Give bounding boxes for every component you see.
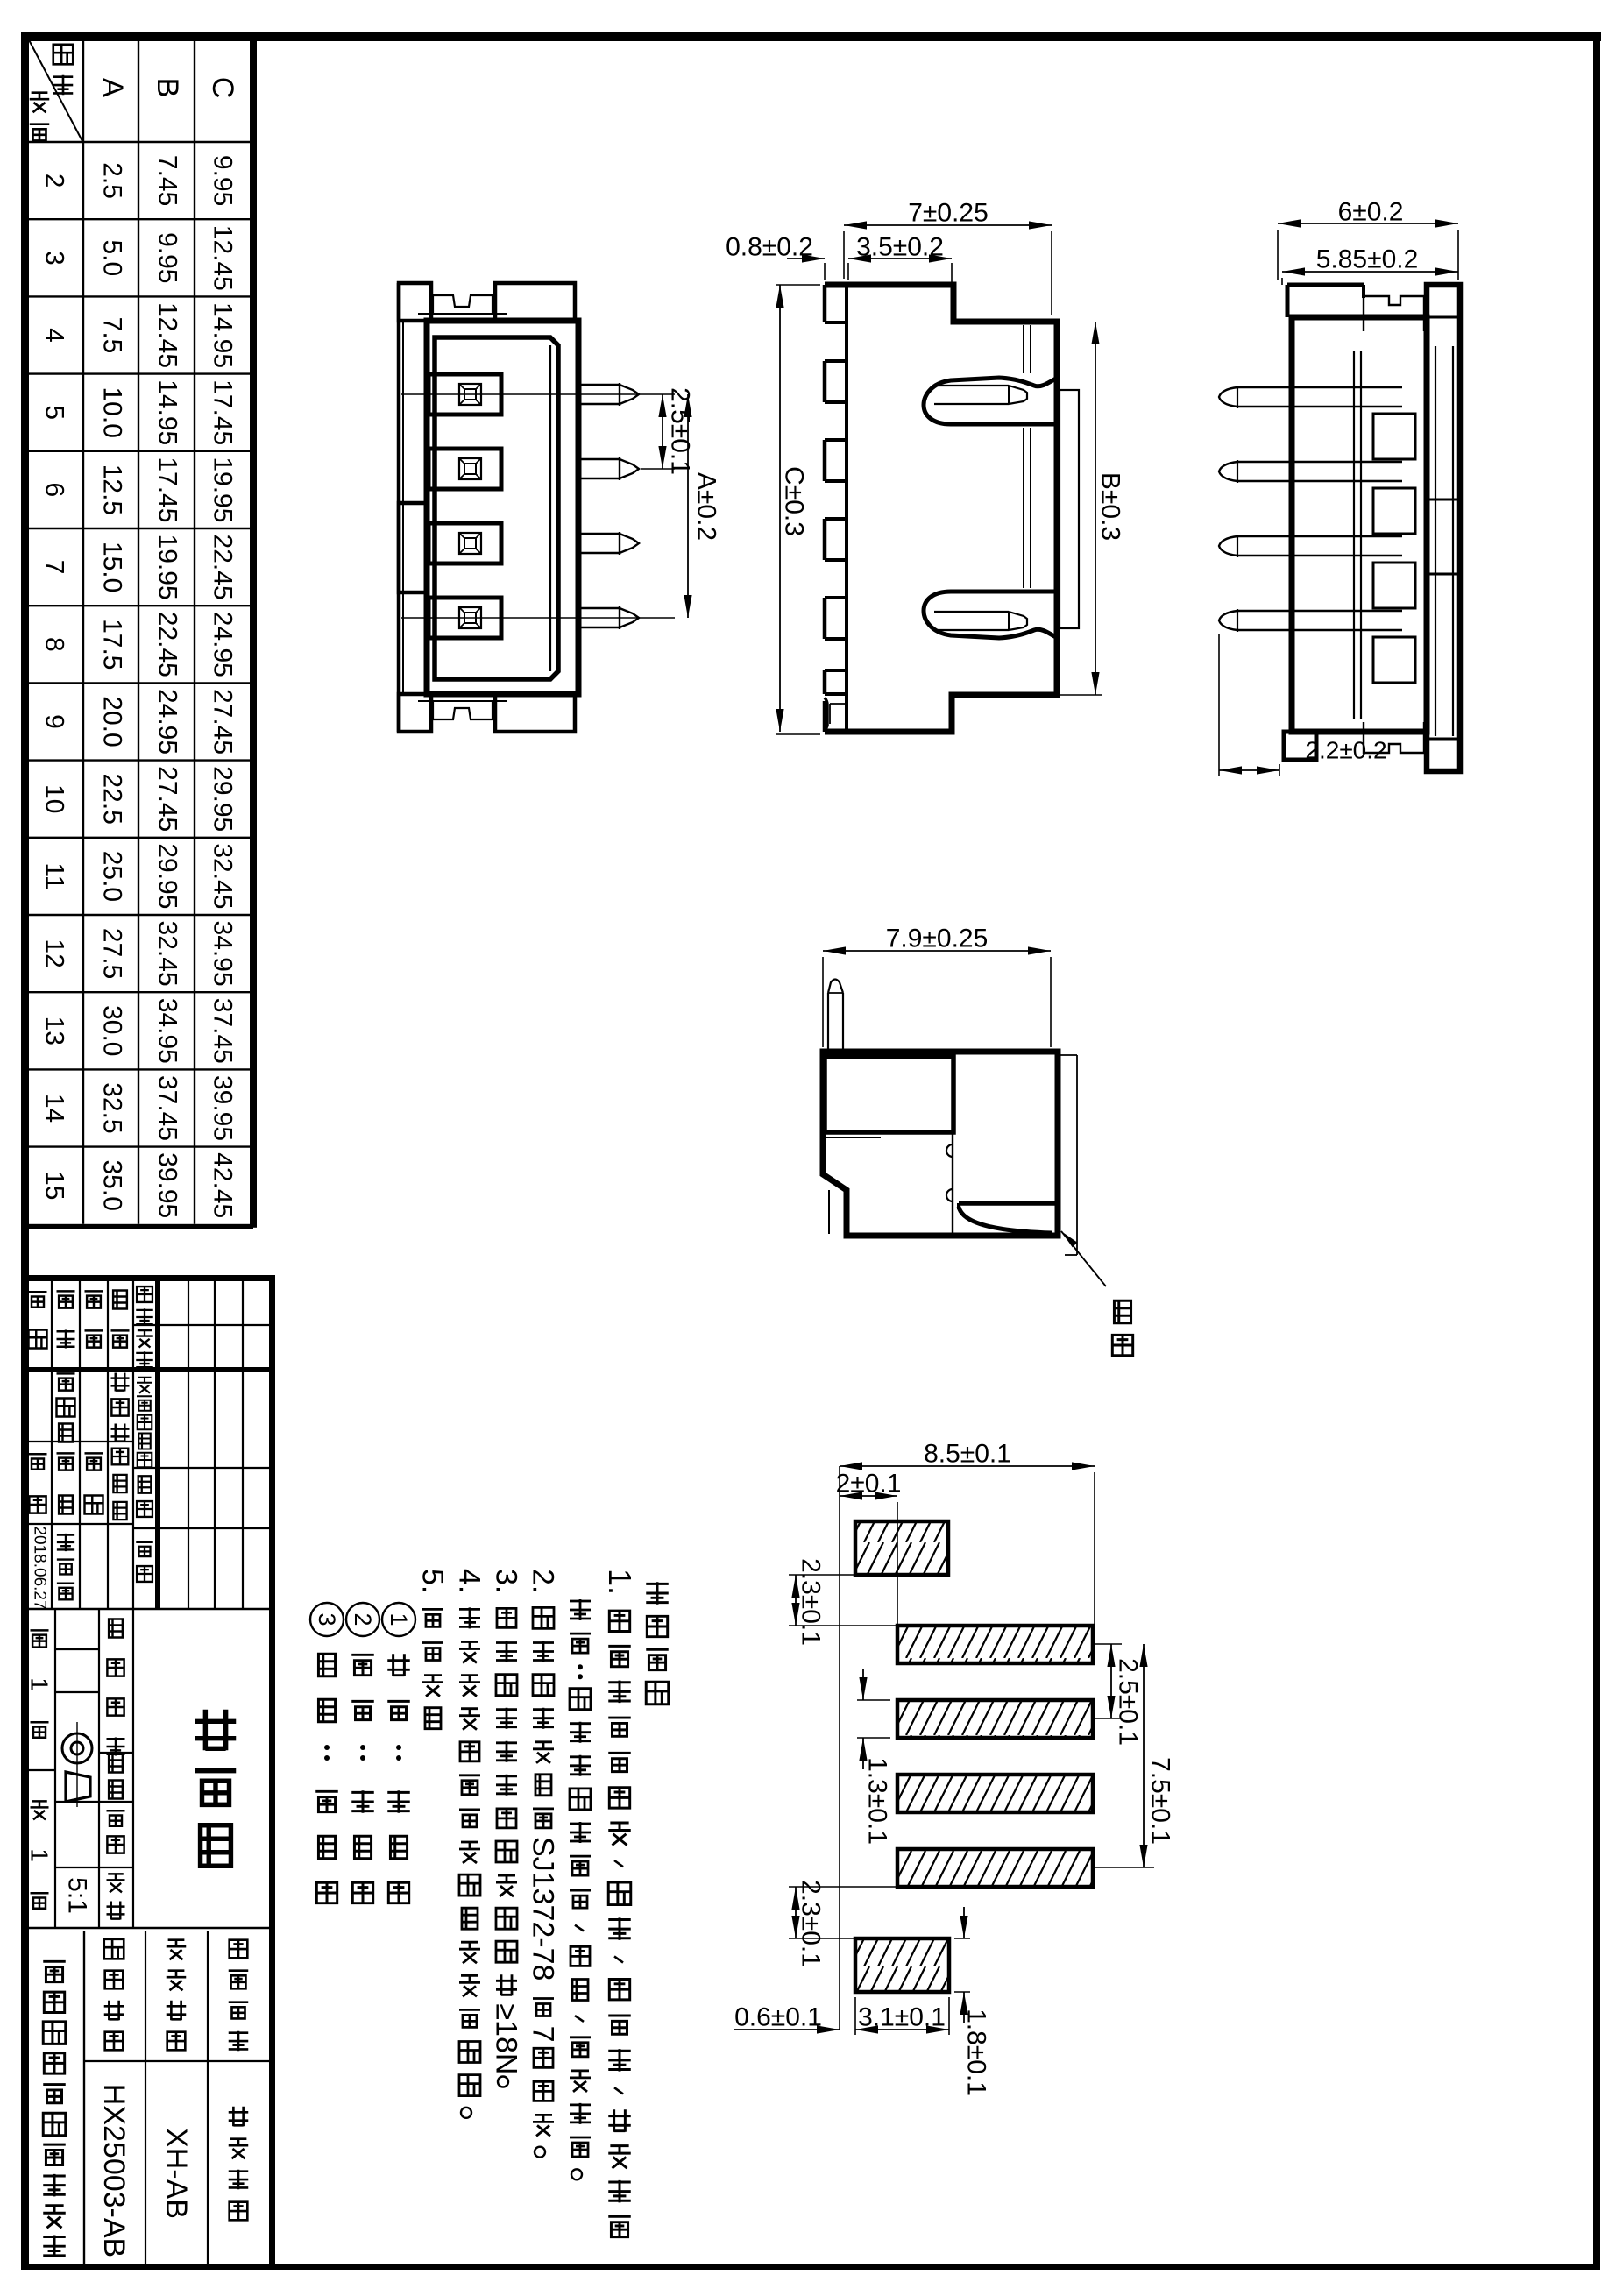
- svg-text:A: A: [96, 78, 129, 98]
- svg-text:≥18N: ≥18N: [489, 2003, 522, 2074]
- svg-text:25.0: 25.0: [98, 851, 127, 902]
- svg-text:22.45: 22.45: [153, 612, 182, 677]
- svg-text:3.1±0.1: 3.1±0.1: [858, 2003, 946, 2032]
- svg-text:2.2±0.2: 2.2±0.2: [1305, 737, 1386, 764]
- svg-text:1.3±0.1: 1.3±0.1: [863, 1757, 892, 1845]
- svg-text:2.: 2.: [526, 1569, 559, 1593]
- svg-text:1.8±0.1: 1.8±0.1: [962, 2009, 991, 2096]
- svg-text:6±0.2: 6±0.2: [1338, 198, 1404, 227]
- svg-text:14.95: 14.95: [153, 379, 182, 445]
- svg-text:4: 4: [40, 328, 69, 343]
- svg-text:39.95: 39.95: [209, 1075, 237, 1141]
- svg-text:7: 7: [40, 560, 69, 575]
- svg-text:7.5: 7.5: [98, 317, 127, 354]
- svg-text:12.5: 12.5: [98, 464, 127, 515]
- svg-text:24.95: 24.95: [209, 612, 237, 677]
- svg-text:HX25003-AB: HX25003-AB: [97, 2084, 131, 2257]
- svg-text:5: 5: [40, 405, 69, 420]
- svg-text:1.: 1.: [602, 1569, 638, 1595]
- svg-text:10.0: 10.0: [98, 387, 127, 438]
- svg-text:2.3±0.1: 2.3±0.1: [797, 1558, 826, 1646]
- svg-text:2.5: 2.5: [98, 162, 127, 199]
- svg-text:3: 3: [314, 1612, 340, 1626]
- svg-text:5.85±0.2: 5.85±0.2: [1316, 245, 1419, 274]
- svg-text:2018.06.27: 2018.06.27: [31, 1526, 49, 1609]
- svg-text:6: 6: [40, 483, 69, 498]
- svg-text:7: 7: [526, 2026, 559, 2043]
- svg-text:2.3±0.1: 2.3±0.1: [797, 1880, 826, 1967]
- svg-text:5:1: 5:1: [63, 1877, 92, 1914]
- svg-text:11: 11: [40, 862, 69, 889]
- svg-text:22.5: 22.5: [98, 774, 127, 825]
- svg-text:37.45: 37.45: [153, 1075, 182, 1141]
- svg-text:12.45: 12.45: [209, 225, 237, 291]
- svg-text:30.0: 30.0: [98, 1005, 127, 1056]
- svg-text:29.95: 29.95: [153, 843, 182, 909]
- svg-text:2: 2: [40, 174, 69, 188]
- svg-text:2.5±0.1: 2.5±0.1: [1114, 1658, 1143, 1746]
- svg-text:1: 1: [386, 1612, 412, 1626]
- svg-text:12.45: 12.45: [153, 302, 182, 368]
- svg-text:9.95: 9.95: [209, 155, 237, 206]
- svg-text:27.45: 27.45: [209, 689, 237, 755]
- svg-text:9: 9: [40, 714, 69, 729]
- svg-text:2.5±0.1: 2.5±0.1: [666, 387, 695, 475]
- svg-text:12: 12: [40, 939, 69, 967]
- svg-text:34.95: 34.95: [209, 921, 237, 987]
- svg-text:2±0.1: 2±0.1: [836, 1470, 902, 1499]
- svg-text:7.45: 7.45: [153, 155, 182, 206]
- svg-text:10: 10: [40, 784, 69, 813]
- svg-text:17.5: 17.5: [98, 619, 127, 670]
- svg-text:B±0.3: B±0.3: [1096, 472, 1125, 541]
- svg-text:8: 8: [40, 637, 69, 652]
- svg-text:2: 2: [350, 1612, 376, 1626]
- svg-text:32.5: 32.5: [98, 1082, 127, 1133]
- svg-text:27.45: 27.45: [153, 766, 182, 832]
- svg-text:5.0: 5.0: [98, 239, 127, 276]
- svg-text:42.45: 42.45: [209, 1152, 237, 1218]
- svg-text:24.95: 24.95: [153, 689, 182, 755]
- svg-text:7.5±0.1: 7.5±0.1: [1146, 1757, 1175, 1845]
- svg-text:XH-AB: XH-AB: [159, 2128, 193, 2219]
- svg-text:15.0: 15.0: [98, 542, 127, 592]
- svg-text:4.: 4.: [452, 1569, 485, 1593]
- svg-text:15: 15: [40, 1171, 69, 1200]
- svg-text:39.95: 39.95: [153, 1152, 182, 1218]
- svg-text:32.45: 32.45: [209, 843, 237, 909]
- svg-text:3.5±0.2: 3.5±0.2: [856, 233, 944, 262]
- svg-text:SJ1372-78: SJ1372-78: [526, 1837, 559, 1981]
- svg-text:20.0: 20.0: [98, 696, 127, 747]
- svg-text:3.: 3.: [489, 1569, 522, 1593]
- svg-text:29.95: 29.95: [209, 766, 237, 832]
- svg-text:0.8±0.2: 0.8±0.2: [726, 233, 813, 262]
- svg-text:35.0: 35.0: [98, 1160, 127, 1211]
- svg-text:C±0.3: C±0.3: [780, 466, 809, 536]
- svg-text:17.45: 17.45: [153, 457, 182, 522]
- svg-text:14: 14: [40, 1094, 69, 1123]
- svg-text:37.45: 37.45: [209, 998, 237, 1064]
- svg-text:19.95: 19.95: [209, 457, 237, 522]
- svg-text:32.45: 32.45: [153, 921, 182, 987]
- svg-text:5.: 5.: [415, 1569, 449, 1593]
- svg-text:19.95: 19.95: [153, 535, 182, 600]
- svg-text:7±0.25: 7±0.25: [908, 199, 989, 228]
- svg-text:A±0.2: A±0.2: [692, 472, 721, 541]
- svg-text:0.6±0.1: 0.6±0.1: [734, 2003, 822, 2032]
- svg-text:14.95: 14.95: [209, 302, 237, 368]
- svg-text:3: 3: [40, 251, 69, 266]
- svg-text:17.45: 17.45: [209, 379, 237, 445]
- svg-text:27.5: 27.5: [98, 928, 127, 979]
- svg-text:1: 1: [26, 1677, 53, 1691]
- svg-text:1: 1: [26, 1848, 53, 1862]
- svg-text:22.45: 22.45: [209, 535, 237, 600]
- svg-text:34.95: 34.95: [153, 998, 182, 1064]
- svg-text:8.5±0.1: 8.5±0.1: [924, 1440, 1011, 1469]
- svg-text:9.95: 9.95: [153, 232, 182, 283]
- svg-text:B: B: [151, 78, 184, 98]
- svg-text:C: C: [206, 77, 239, 99]
- svg-text:7.9±0.25: 7.9±0.25: [886, 925, 989, 953]
- svg-text:13: 13: [40, 1017, 69, 1045]
